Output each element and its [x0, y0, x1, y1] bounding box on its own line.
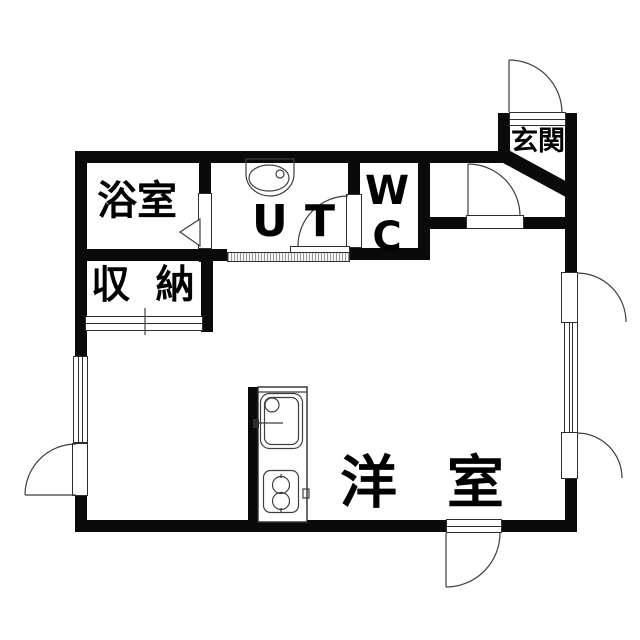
entrance-label: 玄関: [511, 128, 565, 155]
ut-sliding-door-panel: [290, 246, 350, 253]
left-door-arc: [25, 444, 76, 495]
wall-kitchen-stub: [248, 387, 258, 532]
right-casement-bottom-jamb: [561, 432, 578, 479]
wc-label: W C: [360, 168, 414, 260]
wc-label-line2: C: [360, 214, 414, 260]
floor-plan: 浴室 収 納 U T W C 玄関 洋 室 13 帖: [0, 0, 640, 640]
left-window: [73, 356, 88, 443]
entrance-door-arc: [509, 60, 562, 113]
right-casement-top-arc: [577, 273, 626, 322]
main-room-label-line1: 洋 室: [340, 450, 517, 516]
right-window: [564, 322, 578, 433]
wall-top-main: [75, 151, 510, 163]
wc-label-line1: W: [360, 168, 414, 214]
hall-door-jamb: [466, 215, 524, 229]
main-room-label: 洋 室 13 帖: [340, 318, 517, 640]
right-casement-top-jamb: [561, 272, 578, 323]
stove-icon: [264, 471, 310, 513]
wall-bath-ut-upper: [199, 151, 211, 195]
utility-label: U T: [252, 200, 335, 244]
wall-hall-right: [524, 217, 567, 229]
hall-door-arc: [468, 164, 520, 216]
storage-label: 収 納: [91, 266, 195, 305]
wall-hall-left: [418, 217, 466, 229]
bath-door-jamb: [198, 193, 212, 249]
right-casement-bottom-arc: [577, 433, 622, 478]
kitchen-sink-icon: [253, 394, 303, 449]
wall-wc-right: [418, 151, 430, 260]
kitchen-counter: [258, 387, 307, 522]
ut-sliding-door-hatched: [227, 252, 350, 262]
bath-door-icon: [180, 219, 200, 246]
entrance-door-jamb: [509, 112, 566, 126]
storage-slide-bar-2: [85, 323, 203, 331]
wall-right-upper: [565, 113, 577, 273]
left-door-jamb: [72, 443, 88, 496]
wall-ut-wc-upper: [348, 151, 360, 195]
genkan-diagonal-wall: [503, 155, 573, 193]
washbasin-icon: [246, 159, 294, 196]
bathroom-label: 浴室: [97, 181, 177, 221]
stove-knob-icon: [303, 489, 309, 498]
